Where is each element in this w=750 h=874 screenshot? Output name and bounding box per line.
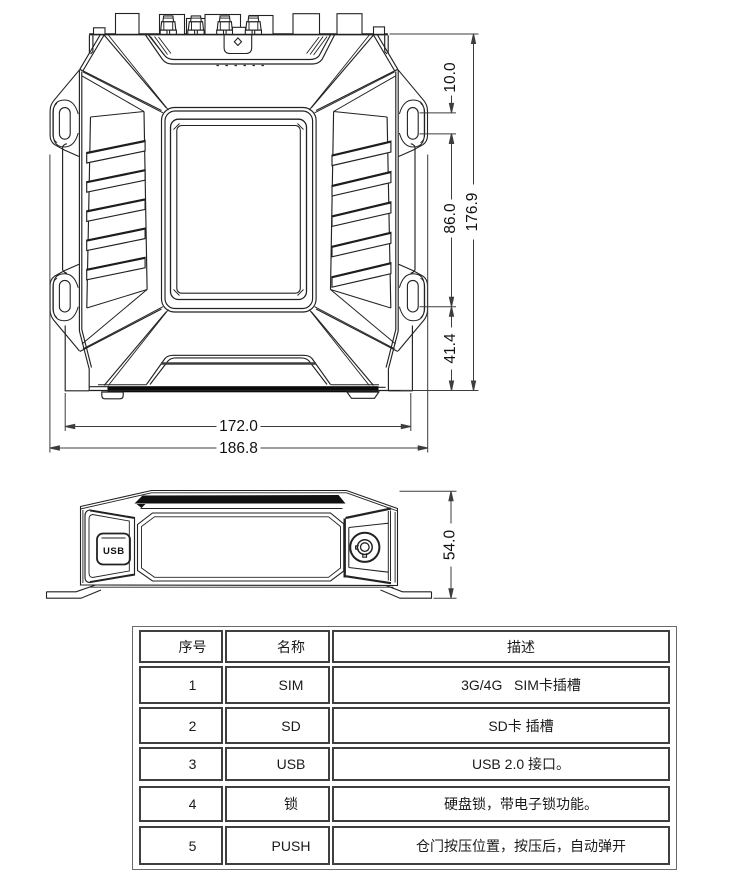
svg-text:10.0: 10.0 <box>442 62 459 93</box>
svg-text:172.0: 172.0 <box>219 418 258 435</box>
svg-text:54.0: 54.0 <box>442 530 459 561</box>
svg-text:USB: USB <box>103 546 125 557</box>
svg-text:41.4: 41.4 <box>442 333 459 364</box>
svg-text:176.9: 176.9 <box>464 193 481 232</box>
svg-text:86.0: 86.0 <box>442 203 459 234</box>
svg-text:186.8: 186.8 <box>219 440 258 457</box>
